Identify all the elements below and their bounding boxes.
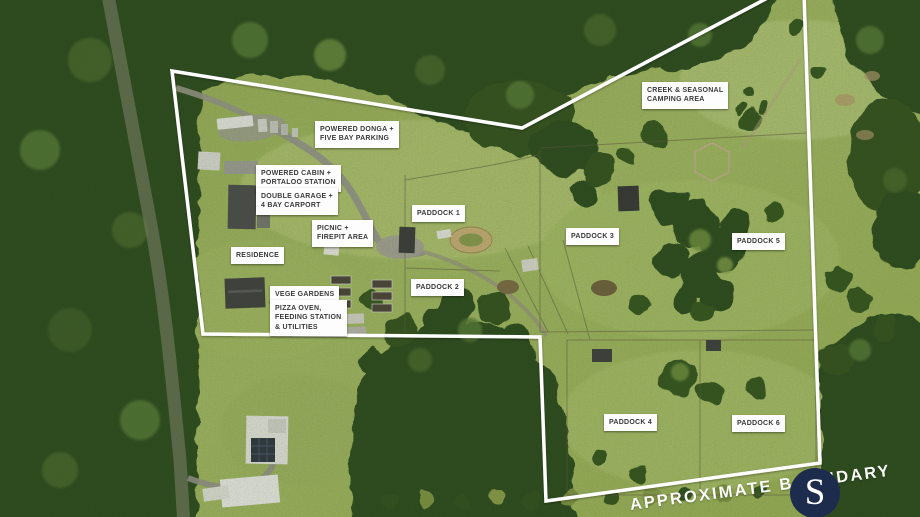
label-pizza-oven: PIZZA OVEN, FEEDING STATION & UTILITIES <box>270 300 347 336</box>
label-powered-donga: POWERED DONGA + FIVE BAY PARKING <box>315 121 399 148</box>
label-paddock-3: PADDOCK 3 <box>566 228 619 245</box>
label-paddock-4: PADDOCK 4 <box>604 414 657 431</box>
label-creek-camping: CREEK & SEASONAL CAMPING AREA <box>642 82 728 109</box>
brand-logo: S <box>790 468 840 517</box>
label-paddock-5: PADDOCK 5 <box>732 233 785 250</box>
annotated-aerial-property-map: POWERED DONGA + FIVE BAY PARKING POWERED… <box>0 0 920 517</box>
label-paddock-1: PADDOCK 1 <box>412 205 465 222</box>
label-paddock-2: PADDOCK 2 <box>411 279 464 296</box>
label-residence: RESIDENCE <box>231 247 284 264</box>
photo-grain <box>0 0 920 517</box>
label-paddock-6: PADDOCK 6 <box>732 415 785 432</box>
label-double-garage: DOUBLE GARAGE + 4 BAY CARPORT <box>256 188 338 215</box>
aerial-photograph <box>0 0 920 517</box>
brand-logo-letter: S <box>805 474 826 511</box>
label-picnic-firepit: PICNIC + FIREPIT AREA <box>312 220 373 247</box>
